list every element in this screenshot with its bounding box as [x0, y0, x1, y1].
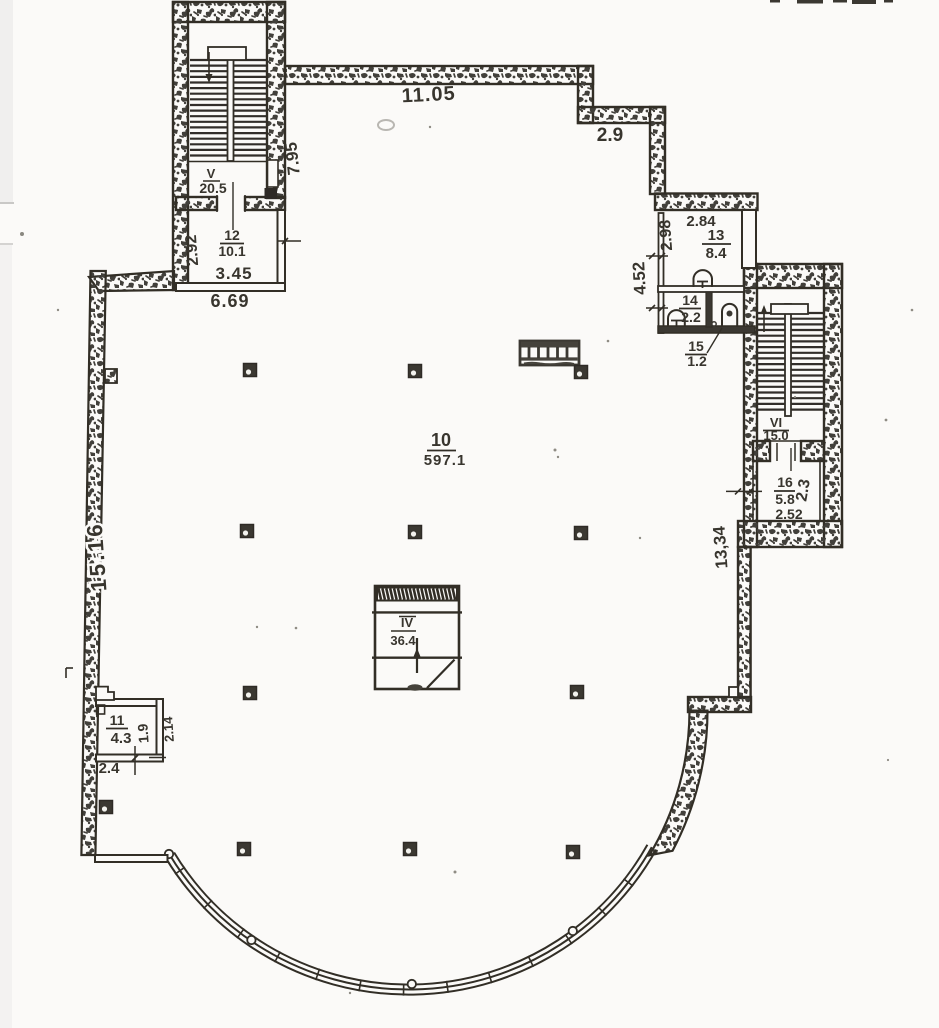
- svg-text:13: 13: [708, 227, 725, 244]
- svg-text:14: 14: [682, 292, 698, 308]
- svg-text:8.4: 8.4: [706, 245, 728, 262]
- svg-text:10: 10: [431, 430, 451, 450]
- svg-text:1.2: 1.2: [687, 353, 707, 369]
- svg-text:2.92: 2.92: [183, 234, 202, 266]
- svg-text:597.1: 597.1: [424, 452, 467, 469]
- svg-text:15.0: 15.0: [763, 428, 788, 443]
- svg-text:16: 16: [777, 474, 793, 490]
- svg-text:5.8: 5.8: [775, 491, 795, 507]
- svg-text:2.4: 2.4: [99, 760, 121, 777]
- svg-text:15.16: 15.16: [82, 521, 112, 593]
- svg-text:2.52: 2.52: [775, 506, 802, 522]
- svg-text:1.9: 1.9: [134, 723, 151, 744]
- svg-text:10.1: 10.1: [218, 243, 245, 259]
- svg-text:11: 11: [110, 712, 125, 728]
- svg-text:3.45: 3.45: [215, 264, 252, 283]
- svg-text:15: 15: [688, 338, 704, 354]
- svg-text:12: 12: [224, 227, 240, 243]
- svg-text:20.5: 20.5: [199, 180, 226, 196]
- svg-text:11.05: 11.05: [401, 83, 456, 108]
- svg-text:4.52: 4.52: [629, 261, 650, 295]
- svg-text:V: V: [207, 166, 216, 181]
- svg-text:2.14: 2.14: [160, 715, 177, 742]
- svg-text:2.98: 2.98: [657, 219, 676, 251]
- svg-text:13,34: 13,34: [710, 525, 732, 569]
- svg-text:7.95: 7.95: [281, 141, 303, 176]
- svg-text:2.9: 2.9: [597, 125, 623, 146]
- svg-text:2.2: 2.2: [681, 309, 701, 325]
- svg-text:4.3: 4.3: [111, 730, 132, 747]
- svg-text:6.69: 6.69: [210, 291, 249, 311]
- svg-text:36.4: 36.4: [390, 633, 416, 648]
